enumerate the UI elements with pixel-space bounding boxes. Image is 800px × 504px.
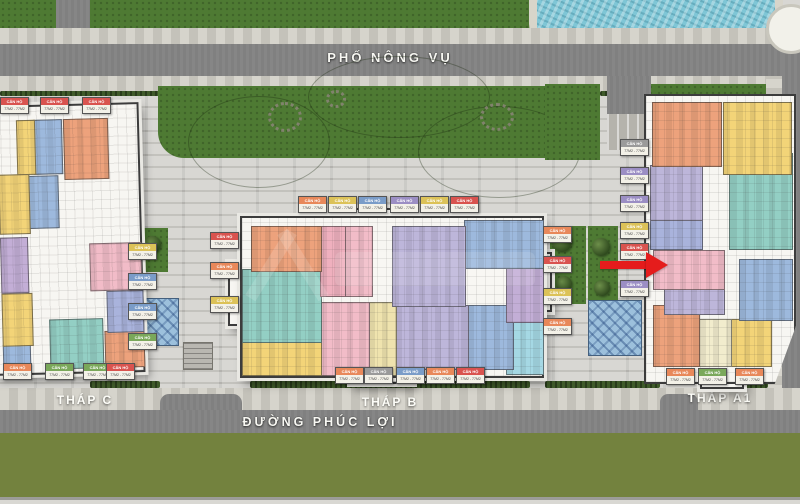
apartment-tag-17: CĂN HỘ77M2 - 77M2 xyxy=(358,196,387,213)
apartment-tag-24: CĂN HỘ77M2 - 77M2 xyxy=(426,367,455,384)
apartment-tag-title: CĂN HỘ xyxy=(129,304,156,311)
unit-b-5-blue[interactable] xyxy=(464,220,544,269)
unit-b-1-orange[interactable] xyxy=(251,226,322,272)
site-plan-map: PHỐ NÔNG VỤ ĐƯỜNG PHÚC LỢI THÁP C THÁP B… xyxy=(0,0,800,504)
unit-c-5-blue[interactable] xyxy=(27,175,60,228)
apartment-tag-title: CĂN HỘ xyxy=(621,168,648,175)
apartment-tag-area: 77M2 - 77M2 xyxy=(129,281,156,289)
apartment-tag-6: CĂN HỘ77M2 - 77M2 xyxy=(128,303,157,320)
apartment-tag-title: CĂN HỘ xyxy=(621,196,648,203)
tower-b-label: THÁP B xyxy=(335,395,445,409)
apartment-tag-title: CĂN HỘ xyxy=(211,263,238,270)
central-lawn xyxy=(158,86,562,158)
apartment-tag-title: CĂN HỘ xyxy=(83,98,110,105)
unit-a1-1-orange[interactable] xyxy=(652,102,722,167)
apartment-tag-title: CĂN HỘ xyxy=(397,368,424,375)
apartment-tag-title: CĂN HỘ xyxy=(4,364,31,371)
apartment-tag-area: 77M2 - 77M2 xyxy=(544,326,571,334)
apartment-tag-title: CĂN HỘ xyxy=(544,319,571,326)
apartment-tag-area: 77M2 - 77M2 xyxy=(329,204,356,212)
apartment-tag-area: 77M2 - 77M2 xyxy=(621,203,648,211)
apartment-tag-37: CĂN HỘ77M2 - 77M2 xyxy=(698,368,727,385)
grass-top-mid xyxy=(92,0,537,30)
apartment-tag-area: 77M2 - 77M2 xyxy=(365,375,392,383)
unit-c-4-yellow[interactable] xyxy=(0,173,31,234)
apartment-tag-title: CĂN HỘ xyxy=(544,227,571,234)
tower-c-building[interactable] xyxy=(0,102,146,376)
apartment-tag-title: CĂN HỘ xyxy=(736,369,763,376)
apartment-tag-area: 77M2 - 77M2 xyxy=(621,175,648,183)
apartment-tag-4: CĂN HỘ77M2 - 77M2 xyxy=(128,243,157,260)
grass-bottom-strip xyxy=(0,433,800,497)
apartment-tag-title: CĂN HỘ xyxy=(129,244,156,251)
unit-a1-3-lavender[interactable] xyxy=(650,165,702,221)
apartment-tag-36: CĂN HỘ77M2 - 77M2 xyxy=(666,368,695,385)
apartment-tag-9: CĂN HỘ77M2 - 77M2 xyxy=(45,363,74,380)
tree-2 xyxy=(592,238,610,256)
apartment-tag-title: CĂN HỘ xyxy=(699,369,726,376)
apartment-tag-31: CĂN HỘ77M2 - 77M2 xyxy=(620,167,649,184)
apartment-tag-30: CĂN HỘ77M2 - 77M2 xyxy=(620,139,649,156)
apartment-tag-15: CĂN HỘ77M2 - 77M2 xyxy=(298,196,327,213)
apartment-tag-area: 77M2 - 77M2 xyxy=(699,376,726,384)
selection-arrow-head xyxy=(646,252,668,278)
stone-circle-3 xyxy=(326,90,346,108)
apartment-tag-title: CĂN HỘ xyxy=(621,140,648,147)
apartment-tag-2: CĂN HỘ77M2 - 77M2 xyxy=(40,97,69,114)
apartment-tag-title: CĂN HỘ xyxy=(359,197,386,204)
unit-b-8-yellow[interactable] xyxy=(242,341,322,376)
apartment-tag-26: CĂN HỘ77M2 - 77M2 xyxy=(543,226,572,243)
apartment-tag-5: CĂN HỘ77M2 - 77M2 xyxy=(128,273,157,290)
apartment-tag-area: 77M2 - 77M2 xyxy=(299,204,326,212)
apartment-tag-12: CĂN HỘ77M2 - 77M2 xyxy=(210,232,239,249)
apartment-tag-area: 77M2 - 77M2 xyxy=(129,251,156,259)
apartment-tag-area: 77M2 - 77M2 xyxy=(421,204,448,212)
apartment-tag-title: CĂN HỘ xyxy=(329,197,356,204)
apartment-tag-area: 77M2 - 77M2 xyxy=(621,251,648,259)
apartment-tag-title: CĂN HỘ xyxy=(46,364,73,371)
apartment-tag-20: CĂN HỘ77M2 - 77M2 xyxy=(450,196,479,213)
apartment-tag-title: CĂN HỘ xyxy=(336,368,363,375)
apartment-tag-16: CĂN HỘ77M2 - 77M2 xyxy=(328,196,357,213)
apartment-tag-35: CĂN HỘ77M2 - 77M2 xyxy=(620,280,649,297)
unit-b-7-teal[interactable] xyxy=(242,269,322,344)
apartment-tag-area: 77M2 - 77M2 xyxy=(397,375,424,383)
selection-arrow-shaft xyxy=(600,261,646,269)
apartment-tag-area: 77M2 - 77M2 xyxy=(427,375,454,383)
apartment-tag-23: CĂN HỘ77M2 - 77M2 xyxy=(396,367,425,384)
unit-a1-2-yellow[interactable] xyxy=(723,102,792,176)
apartment-tag-area: 77M2 - 77M2 xyxy=(359,204,386,212)
unit-b-3-pink[interactable] xyxy=(344,226,373,298)
apartment-tag-area: 77M2 - 77M2 xyxy=(457,375,484,383)
apartment-tag-22: CĂN HỘ77M2 - 77M2 xyxy=(364,367,393,384)
glass-canopy-right xyxy=(588,300,642,356)
unit-c-2-blue[interactable] xyxy=(33,119,63,175)
apartment-tag-13: CĂN HỘ77M2 - 77M2 xyxy=(210,262,239,279)
apartment-tag-title: CĂN HỘ xyxy=(621,281,648,288)
apartment-tag-title: CĂN HỘ xyxy=(621,244,648,251)
apartment-tag-7: CĂN HỘ77M2 - 77M2 xyxy=(128,333,157,350)
apartment-tag-area: 77M2 - 77M2 xyxy=(391,204,418,212)
unit-c-1-yellow[interactable] xyxy=(16,120,37,176)
apartment-tag-area: 77M2 - 77M2 xyxy=(83,105,110,113)
apartment-tag-title: CĂN HỘ xyxy=(365,368,392,375)
apartment-tag-33: CĂN HỘ77M2 - 77M2 xyxy=(620,222,649,239)
apartment-tag-area: 77M2 - 77M2 xyxy=(621,230,648,238)
apartment-tag-area: 77M2 - 77M2 xyxy=(544,296,571,304)
hedge-bottom-1 xyxy=(90,381,160,388)
apartment-tag-area: 77M2 - 77M2 xyxy=(129,311,156,319)
curb-line-light xyxy=(0,500,800,504)
apartment-tag-38: CĂN HỘ77M2 - 77M2 xyxy=(735,368,764,385)
apartment-tag-title: CĂN HỘ xyxy=(129,274,156,281)
apartment-tag-title: CĂN HỘ xyxy=(451,197,478,204)
apartment-tag-title: CĂN HỘ xyxy=(129,334,156,341)
apartment-tag-area: 77M2 - 77M2 xyxy=(621,288,648,296)
apartment-tag-area: 77M2 - 77M2 xyxy=(736,376,763,384)
street-name-bottom: ĐƯỜNG PHÚC LỢI xyxy=(230,415,410,429)
unit-a1-11-yellow[interactable] xyxy=(730,319,772,367)
apartment-tag-28: CĂN HỘ77M2 - 77M2 xyxy=(543,288,572,305)
apartment-tag-area: 77M2 - 77M2 xyxy=(211,270,238,278)
apartment-tag-19: CĂN HỘ77M2 - 77M2 xyxy=(420,196,449,213)
apartment-tag-area: 77M2 - 77M2 xyxy=(41,105,68,113)
unit-c-3-orange[interactable] xyxy=(62,118,109,180)
apartment-tag-18: CĂN HỘ77M2 - 77M2 xyxy=(390,196,419,213)
stone-circle-1 xyxy=(268,102,302,132)
apartment-tag-area: 77M2 - 77M2 xyxy=(46,371,73,379)
tower-b-building[interactable] xyxy=(240,216,544,378)
apartment-tag-25: CĂN HỘ77M2 - 77M2 xyxy=(456,367,485,384)
apartment-tag-title: CĂN HỘ xyxy=(391,197,418,204)
apartment-tag-area: 77M2 - 77M2 xyxy=(129,341,156,349)
unit-c-6-purple[interactable] xyxy=(0,237,29,293)
apartment-tag-area: 77M2 - 77M2 xyxy=(336,375,363,383)
tower-c-label: THÁP C xyxy=(30,393,140,407)
apartment-tag-34: CĂN HỘ77M2 - 77M2 xyxy=(620,243,649,260)
unit-a1-10-cream[interactable] xyxy=(699,319,732,367)
stone-circle-2 xyxy=(480,103,514,131)
apartment-tag-27: CĂN HỘ77M2 - 77M2 xyxy=(543,256,572,273)
unit-b-9-pink[interactable] xyxy=(320,302,370,377)
apartment-tag-11: CĂN HỘ77M2 - 77M2 xyxy=(106,363,135,380)
apartment-tag-title: CĂN HỘ xyxy=(544,257,571,264)
apartment-tag-32: CĂN HỘ77M2 - 77M2 xyxy=(620,195,649,212)
apartment-tag-area: 77M2 - 77M2 xyxy=(667,376,694,384)
apartment-tag-area: 77M2 - 77M2 xyxy=(107,371,134,379)
driveway-top-left xyxy=(56,0,90,30)
apartment-tag-title: CĂN HỘ xyxy=(621,223,648,230)
apartment-tag-21: CĂN HỘ77M2 - 77M2 xyxy=(335,367,364,384)
apartment-tag-title: CĂN HỘ xyxy=(544,289,571,296)
apartment-tag-title: CĂN HỘ xyxy=(421,197,448,204)
apartment-tag-area: 77M2 - 77M2 xyxy=(544,264,571,272)
unit-b-4-lavender[interactable] xyxy=(392,226,466,307)
unit-b-6-purple[interactable] xyxy=(506,267,544,323)
apartment-tag-title: CĂN HỘ xyxy=(107,364,134,371)
apartment-tag-area: 77M2 - 77M2 xyxy=(621,147,648,155)
unit-c-8-yellow[interactable] xyxy=(1,293,34,346)
apartment-tag-title: CĂN HỘ xyxy=(299,197,326,204)
apartment-tag-29: CĂN HỘ77M2 - 77M2 xyxy=(543,318,572,335)
apartment-tag-title: CĂN HỘ xyxy=(457,368,484,375)
unit-b-11-lavender[interactable] xyxy=(395,305,469,370)
unit-c-10-teal[interactable] xyxy=(49,318,105,369)
tower-a1-building[interactable] xyxy=(644,94,796,384)
apartment-tag-14: CĂN HỘ77M2 - 77M2 xyxy=(210,296,239,313)
ramp-stairs xyxy=(183,342,213,370)
tower-a1-label: THÁP A1 xyxy=(665,391,775,405)
apartment-tag-title: CĂN HỘ xyxy=(211,233,238,240)
apartment-tag-title: CĂN HỘ xyxy=(211,297,238,304)
apartment-tag-area: 77M2 - 77M2 xyxy=(4,371,31,379)
apartment-tag-title: CĂN HỘ xyxy=(41,98,68,105)
lawn-right-1 xyxy=(545,84,600,160)
apartment-tag-area: 77M2 - 77M2 xyxy=(211,304,238,312)
tree-4 xyxy=(594,280,610,296)
unit-b-2-rose[interactable] xyxy=(320,226,346,298)
apartment-tag-8: CĂN HỘ77M2 - 77M2 xyxy=(3,363,32,380)
apartment-tag-area: 77M2 - 77M2 xyxy=(544,234,571,242)
unit-a1-7-lavender[interactable] xyxy=(664,288,725,316)
apartment-tag-3: CĂN HỘ77M2 - 77M2 xyxy=(82,97,111,114)
apartment-tag-title: CĂN HỘ xyxy=(1,98,28,105)
hedge-bottom-3 xyxy=(545,381,660,388)
unit-a1-4-periwinkle[interactable] xyxy=(650,219,702,250)
apartment-tag-area: 77M2 - 77M2 xyxy=(451,204,478,212)
apartment-tag-title: CĂN HỘ xyxy=(427,368,454,375)
apartment-tag-area: 77M2 - 77M2 xyxy=(211,240,238,248)
apartment-tag-title: CĂN HỘ xyxy=(667,369,694,376)
unit-a1-8-blue[interactable] xyxy=(739,259,793,321)
apartment-tag-area: 77M2 - 77M2 xyxy=(1,105,28,113)
unit-b-10-paleyellow[interactable] xyxy=(368,302,397,377)
apartment-tag-1: CĂN HỘ77M2 - 77M2 xyxy=(0,97,29,114)
